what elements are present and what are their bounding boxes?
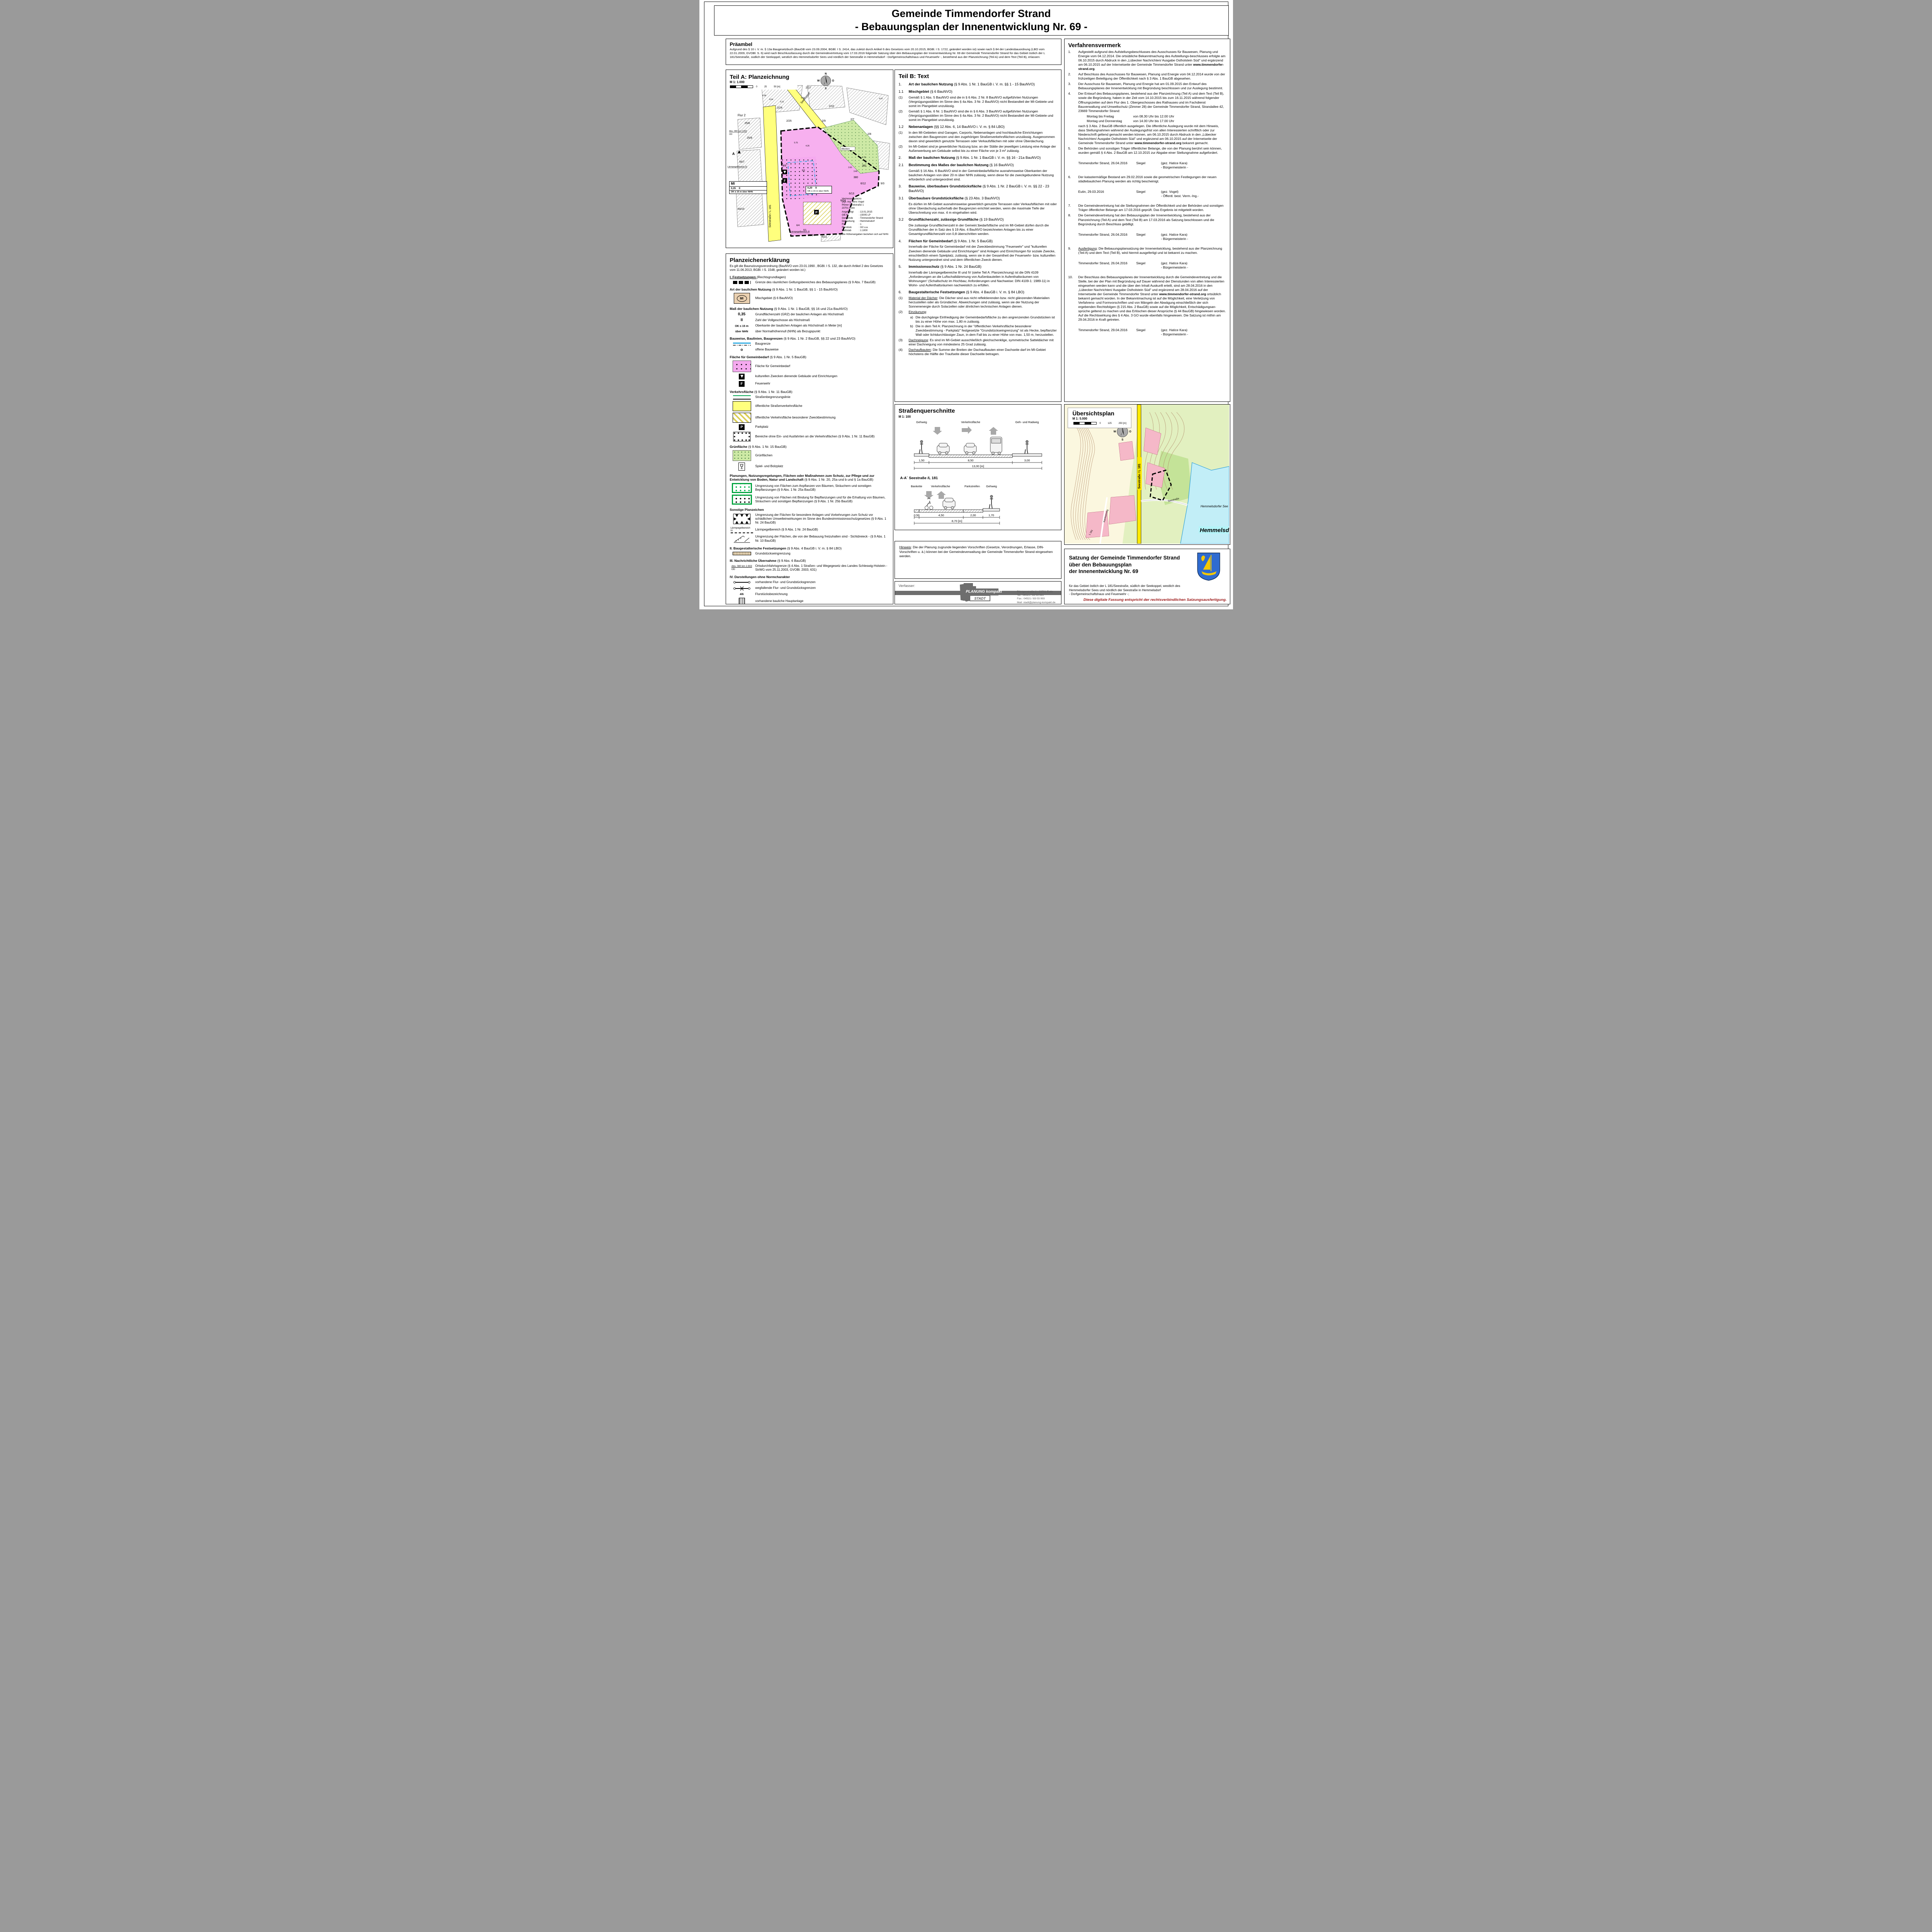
surveyor-line: Plöner Landstraße 1 [842, 204, 891, 207]
numbered-paragraph: (1)Gemäß § 1 Abs. 5 BauNVO sind die in §… [899, 95, 1057, 108]
hours-day: Montag bis Freitag [1087, 114, 1133, 119]
survey-meta-val: : 15005 LP [859, 214, 891, 217]
svg-text:4,50: 4,50 [938, 514, 944, 517]
legend-item-label: vorhandene Flur- und Grundstücksgrenzen [755, 580, 889, 584]
numbered-paragraph: 7.Die Gemeindevertretung hat die Stellun… [1068, 204, 1226, 212]
signature-name: (gez. Hatice Kara) [1161, 261, 1226, 265]
svg-text:54/10: 54/10 [738, 208, 745, 211]
symbol-bind-icon [731, 495, 753, 505]
verfahrensvermerk-box: Verfahrensvermerk 1.Aufgestellt aufgrund… [1064, 39, 1230, 402]
legend-item-label: wegfallende Flur- und Grundstücksgrenzen [755, 586, 889, 590]
scalebar-labels: 02550 [m] [756, 86, 781, 88]
symbol-txt-sm-icon: 4/6 [731, 592, 753, 596]
title-box: Gemeinde Timmendorfer Strand - Bebauungs… [714, 5, 1229, 36]
signature-row: Timmendorfer Strand, 26.04.2016Siegel(ge… [1078, 261, 1226, 270]
svg-text:9/3: 9/3 [881, 182, 884, 185]
legend-group-heading: Planungen, Nutzungsregelungen, Flächen o… [730, 474, 889, 481]
legend-item-label: Ortsdurchfahrtsgrenze (§ 4 Abs. 1 Straße… [755, 564, 889, 572]
signature-seal: Siegel [1136, 261, 1161, 265]
svg-text:A: A [732, 152, 735, 156]
symbol-txt-sm-icon: OK ≤ 15 m [731, 324, 753, 328]
symbol-txt-icon: 0,35 [731, 312, 753, 316]
verfasser-box: Verfasser: PLANUNG kompakt STADT Röntgen… [895, 581, 1061, 604]
legend-item: Umgrenzung von Flächen zum Anpflanzen vo… [731, 483, 889, 493]
municipal-coat-of-arms [1197, 552, 1221, 581]
legend-item-label: Umgrenzung der Flächen für besondere Anl… [755, 513, 889, 525]
survey-meta-key: Gemeinde [842, 217, 859, 220]
signature-row: Eutin, 29.03.2016Siegel(gez. Vogel)- Öff… [1078, 190, 1226, 198]
section-heading: 3.1Überbaubare Grundstücksfläche (§ 23 A… [899, 196, 1057, 201]
svg-text:2/27: 2/27 [806, 87, 811, 89]
symbol-kultur-icon [731, 374, 753, 379]
signature-seal: Siegel [1136, 233, 1161, 237]
paragraph: Innerhalb der Fläche für Gemeinbedarf mi… [909, 245, 1057, 262]
legend-item: 4/6Flurstücksbezeichnung [731, 592, 889, 596]
praeambel-box: Präambel Aufgrund des § 10 i. V. m. § 13… [726, 39, 1061, 65]
section-heading: 2.1Bestimmung des Maßes der baulichen Nu… [899, 163, 1057, 168]
legend-item-label: Lärmpegelbereich (§ 9 Abs. 1 Nr. 24 BauG… [755, 528, 889, 532]
legend-item-label: Umgrenzung von Flächen zum Anpflanzen vo… [755, 484, 889, 492]
scalebar-segments [730, 85, 753, 88]
svg-text:Flur 2: Flur 2 [738, 114, 746, 117]
satzung-box: Satzung der Gemeinde Timmendorfer Strand… [1064, 549, 1230, 604]
numbered-paragraph: (1)Material der Dächer: Die Dächer sind … [899, 296, 1057, 309]
signature-place: Timmendorfer Strand, 26.04.2016 [1078, 233, 1136, 237]
symbol-immission-icon [731, 514, 753, 524]
legend-item-label: Parkplatz [755, 425, 889, 429]
legend-item-label: Umgrenzung von Flächen mit Bindung für B… [755, 496, 889, 504]
legend-group-heading: IV. Darstellungen ohne Normcharakter [730, 575, 889, 579]
symbol-eingr-icon [731, 552, 753, 555]
parkplatz-icon: P [814, 210, 819, 214]
svg-text:1,50: 1,50 [918, 459, 924, 462]
survey-meta-key: Gemarkung [842, 220, 859, 223]
legend-item-label: Grünflächen [755, 454, 889, 457]
symbol-laerm-icon: Lärmpegelbereich IV [731, 527, 753, 533]
legend-item-label: öffentliche Verkehrsfläche besonderer Zw… [755, 416, 889, 420]
svg-text:4.26: 4.26 [806, 145, 810, 147]
address-line: Röntgenstraße 1 - 23701 Eutin [1017, 590, 1055, 594]
verfahrensvermerk-body: 1.Aufgestellt aufgrund des Aufstellungsb… [1068, 50, 1226, 337]
svg-text:W: W [1113, 430, 1116, 433]
logo-text-2: STADT [975, 597, 986, 600]
svg-text:Verkehrsfläche: Verkehrsfläche [931, 485, 950, 488]
legend-group-heading: Fläche für Gemeinbedarf (§ 9 Abs. 1 Nr. … [730, 355, 889, 359]
legend-item: PParkplatz [731, 424, 889, 430]
legend-intro: Es gilt die Baunutzungsverordnung (BauNV… [730, 264, 889, 272]
legend-item: ooffene Bauweise [731, 348, 889, 352]
survey-meta-val: : 1:1000 [859, 229, 891, 232]
praeambel-body: Aufgrund des § 10 i. V. m. § 13a Baugese… [730, 48, 1057, 59]
svg-text:4.97: 4.97 [879, 98, 883, 100]
satzung-body-line1: für das Gebiet östlich der L 181/Seestra… [1069, 584, 1225, 588]
hours-time: von 14.00 Uhr bis 17.00 Uhr [1133, 119, 1226, 123]
legend-body: I. Festsetzungen (Rechtsgrundlagen)Grenz… [726, 275, 893, 604]
legend-group-heading: Bauweise, Baulinien, Baugrenzen (§ 9 Abs… [730, 337, 889, 340]
symbol-boundary-icon [731, 281, 753, 284]
numbered-paragraph: 8.Die Gemeindevertretung hat den Bebauun… [1068, 213, 1226, 226]
svg-text:6/4: 6/4 [796, 224, 800, 227]
svg-text:Hemmelsdorf: Hemmelsdorf [1200, 527, 1229, 534]
svg-text:2/24: 2/24 [777, 107, 782, 109]
legend-item-label: Umgrenzung der Flächen, die von der Beba… [755, 535, 889, 543]
teil-b-body: 1.Art der baulichen Nutzung (§ 9 Abs. 1 … [899, 82, 1057, 356]
svg-text:S: S [1121, 439, 1123, 441]
legend-heading: Planzeichenerklärung [730, 257, 889, 264]
svg-text:6/12: 6/12 [861, 182, 866, 185]
legend-item: Abs. 080 km 2,933ODOrtsdurchfahrtsgrenze… [731, 564, 889, 572]
cross-sections-box: Straßenquerschnitte M 1: 100 GehwegVerke… [895, 404, 1061, 530]
section-heading: 3.2Grundflächenzahl, zulässige Grundfläc… [899, 218, 1057, 222]
numbered-paragraph: 1.Aufgestellt aufgrund des Aufstellungsb… [1068, 50, 1226, 71]
phone-line: Tel.: 04521 / 83 03 991 [1017, 594, 1055, 597]
numbered-paragraph: (2)Einzäunung: [899, 310, 1057, 314]
section-heading: 2.Maß der baulichen Nutzung (§ 9 Abs. 1 … [899, 156, 1057, 160]
svg-text:P: P [815, 211, 818, 214]
svg-text:N: N [825, 73, 827, 75]
survey-meta-key: Flurstück [842, 226, 859, 229]
survey-meta-key: Maßstab [842, 229, 859, 232]
svg-text:8,70 [m]: 8,70 [m] [951, 519, 962, 523]
symbol-ohnein-icon [731, 432, 753, 442]
hours-time: von 08.30 Uhr bis 12.00 Uhr [1133, 114, 1226, 119]
signature-role: - Bürgermeisterin - [1161, 165, 1226, 170]
survey-meta-key: Angefertigt [842, 211, 859, 214]
verfasser-address: Röntgenstraße 1 - 23701 Eutin Tel.: 0452… [1017, 590, 1055, 604]
section-heading: 1.1Mischgebiet (§ 6 BauNVO) [899, 90, 1057, 94]
mail-line: Mail: stadt@planung-kompakt.de [1017, 601, 1055, 604]
svg-text:O: O [1129, 430, 1131, 433]
kultur-icon [782, 170, 787, 174]
legend-item: über NHNüber Normalhöhennull (NHN) als B… [731, 330, 889, 333]
signature-role: - Bürgermeisterin - [1161, 332, 1226, 337]
info2-grz: 0,20 [808, 187, 813, 189]
numbered-paragraph: (3)Dachneigung: Es sind im MI-Gebiet aus… [899, 338, 1057, 347]
survey-meta-val: : 13.01.2015 [859, 211, 891, 214]
legend-item: Bereiche ohne Ein- und Ausfahrten an die… [731, 432, 889, 442]
svg-text:2/25: 2/25 [786, 120, 792, 122]
symbol-gemeinbedarf-icon [731, 361, 753, 372]
legend-item: Grenze des räumlichen Geltungsbereiches … [731, 281, 889, 284]
svg-text:6/11: 6/11 [822, 236, 827, 238]
legend-item: FFeuerwehr [731, 381, 889, 387]
svg-text:13,00 [m]: 13,00 [m] [972, 464, 984, 468]
svg-text:2.76: 2.76 [862, 156, 866, 159]
svg-text:Verkehrsfläche: Verkehrsfläche [961, 420, 980, 424]
symbol-blackbox-icon: F [731, 381, 753, 387]
signature-role: - Bürgermeisterin - [1161, 237, 1226, 241]
surveyor-line: 23701 Eutin [842, 207, 891, 210]
signature-name: (gez. Hatice Kara) [1161, 233, 1226, 237]
svg-text:O: O [832, 80, 834, 82]
hinweis-box: Hinweis: Die der Planung zugrunde liegen… [895, 541, 1061, 579]
svg-text:Bankette: Bankette [911, 485, 922, 488]
symbol-blackbox-icon: P [731, 424, 753, 430]
hours-day: Montag und Donnerstag [1087, 119, 1133, 123]
paragraph: Es dürfen im MI-Gebiet ausnahmsweise gew… [909, 202, 1057, 215]
legend-item: MIMischgebiet (§ 6 BauNVO) [731, 293, 889, 304]
satzung-title-line1: Satzung der Gemeinde Timmendorfer Strand [1069, 554, 1194, 561]
survey-meta-key: Flur [842, 223, 859, 226]
numbered-paragraph: (1)In den MI-Gebieten sind Garagen, Carp… [899, 131, 1057, 143]
legend-item-label: Spiel- und Bolzplatz [755, 464, 889, 468]
satzung-digital-note: Diese digitale Fassung entspricht der re… [1065, 598, 1227, 602]
svg-text:2/7: 2/7 [850, 118, 854, 121]
legend-item: Umgrenzung von Flächen mit Bindung für B… [731, 495, 889, 505]
lettered-subparagraph: a)Die durchgänge Einfriedigung der Gemei… [910, 315, 1057, 324]
svg-text:OD: OD [729, 133, 732, 136]
svg-text:Lärmpegelbereich III: Lärmpegelbereich III [790, 231, 810, 233]
legend-group-heading: III. Nachrichtliche Übernahme (§ 9 Abs. … [730, 559, 889, 563]
survey-meta-val: : Hemmelsdorf [859, 220, 891, 223]
svg-text:6/13: 6/13 [849, 192, 854, 195]
symbol-flur-icon [731, 580, 753, 584]
svg-text:380: 380 [854, 176, 858, 179]
cross-sections-heading: Straßenquerschnitte [899, 408, 1057, 414]
legend-item-label: vorhandene bauliche Hauptanlage [755, 599, 889, 603]
teil-a-scale: M 1: 1.000 [730, 80, 789, 84]
svg-text:6.21: 6.21 [780, 101, 784, 103]
legend-item-label: Zahl der Vollgeschosse als Höchstmaß [755, 318, 889, 322]
mi-info-floors: II [739, 187, 740, 190]
cross-sections-body: GehwegVerkehrsflächeGeh- und Radweg1,508… [895, 418, 1061, 530]
svg-text:3.40: 3.40 [854, 170, 857, 173]
teil-a-box: FPNSWOFlur 22/272/242/102/252/92/72/825/… [726, 70, 893, 248]
legend-item: Umgrenzung der Flächen für besondere Anl… [731, 513, 889, 525]
numbered-paragraph: (4)Dachaufbauten: Die Summe der Breiten … [899, 348, 1057, 356]
fax-line: Fax.: 04521 / 83 03 993 [1017, 597, 1055, 600]
surveyor-line: Vermessungsbüro [842, 197, 891, 201]
symbol-strasse-icon [731, 401, 753, 411]
teil-a-header: Teil A: Planzeichnung M 1: 1.000 02550 [… [726, 70, 797, 90]
scalebar-labels: 0125250 [m] [1100, 422, 1126, 425]
symbol-mi-icon: MI [731, 293, 753, 304]
numbered-paragraph: (2)Im MI-Gebiet sind je gewerblicher Nut… [899, 145, 1057, 153]
survey-meta-key: GB-Nr. [842, 214, 859, 217]
legend-item: vorhandene Flur- und Grundstücksgrenzen [731, 580, 889, 584]
overview-scalebar: 0125250 [m] [1073, 422, 1126, 425]
signature-row: Timmendorfer Strand, 29.04.2016Siegel(ge… [1078, 328, 1226, 337]
mi-info-grz: 0,35 [731, 187, 736, 190]
plan-info-box-2: 0,20II OK ≤ 15 m über NHN [806, 186, 832, 194]
numbered-paragraph: 10.Der Beschluss des Bebauungsplanes der… [1068, 275, 1226, 322]
numbered-paragraph: 5.Die Behörden und sonstigen Träger öffe… [1068, 146, 1226, 155]
legend-item-label: über Normalhöhennull (NHN) als Bezugspun… [755, 330, 889, 333]
symbol-od-icon: Abs. 080 km 2,933OD [731, 565, 753, 571]
info2-floors: II [815, 187, 817, 189]
svg-text:W: W [817, 80, 820, 82]
svg-text:8.54: 8.54 [769, 99, 773, 101]
paragraph-continued: nach § 3 Abs. 2 BauGB öffentlich ausgele… [1078, 124, 1226, 145]
satzung-body-line3: - Dorfgemeinschaftshaus und Feuerwehr -; [1069, 592, 1225, 597]
overview-scale: M 1: 5.000 [1073, 417, 1122, 420]
hinweis-text: Hinweis: Die der Planung zugrunde liegen… [900, 545, 1056, 559]
legend-item-label: Feuerwehr [755, 382, 889, 386]
document-title-line2: - Bebauungsplan der Innenentwicklung Nr.… [855, 20, 1088, 34]
legend-group-heading: Verkehrsfläche (§ 9 Abs. 1 Nr. 11 BauGB) [730, 390, 889, 394]
survey-note: Die Höhenangaben beziehen sich auf NHN [842, 233, 891, 236]
svg-text:25/8: 25/8 [745, 122, 750, 125]
legend-group-heading: Art der baulichen Nutzung (§ 9 Abs. 1 Nr… [730, 287, 889, 291]
legend-item-label: Bereiche ohne Ein- und Ausfahrten an die… [755, 435, 889, 439]
svg-text:Seestraße / L 181: Seestraße / L 181 [768, 205, 772, 228]
paragraph: Innerhalb der Lärmpegelbereiche III und … [909, 270, 1057, 287]
signature-role: - Bürgermeisterin - [1161, 265, 1226, 270]
signature-place: Timmendorfer Strand, 29.04.2016 [1078, 328, 1136, 332]
legend-item-label: Grundstückseingrenzung [755, 552, 889, 556]
survey-meta-val: : 3/2 u.a. [859, 226, 891, 229]
svg-text:Gehweg: Gehweg [916, 420, 927, 424]
legend-item-label: Baugrenze [755, 342, 889, 346]
scalebar-segments [1073, 422, 1097, 425]
symbol-anpf-icon [731, 483, 753, 493]
svg-text:Geh- und Radweg: Geh- und Radweg [1015, 420, 1039, 424]
info2-ok: OK ≤ 15 m über NHN [806, 190, 832, 193]
legend-item: Fläche für Gemeinbedarf [731, 361, 889, 372]
svg-text:2/10: 2/10 [829, 105, 834, 108]
svg-text:6.98: 6.98 [762, 95, 766, 97]
hinweis-body: : Die der Planung zugrunde liegenden Vor… [900, 545, 1053, 558]
symbol-spielplatz-icon [731, 463, 753, 471]
legend-item: IIZahl der Vollgeschosse als Höchstmaß [731, 318, 889, 322]
legend-item-label: Flurstücksbezeichnung [755, 592, 889, 596]
svg-text:381: 381 [862, 165, 867, 167]
svg-text:2/8: 2/8 [867, 133, 871, 136]
signature-seal: Siegel [1136, 190, 1161, 194]
cross-section-diagram: GehwegVerkehrsflächeGeh- und Radweg1,508… [895, 418, 1061, 473]
legend-item: Spiel- und Bolzplatz [731, 463, 889, 471]
signature-place: Timmendorfer Strand, 26.04.2016 [1078, 261, 1136, 265]
section-heading: 4.Flächen für Gemeinbedarf (§ 9 Abs. 1 N… [899, 239, 1057, 244]
surveyor-block: VermessungsbüroDipl.-Ing. Jens VogelPlön… [842, 197, 891, 236]
svg-text:Parkstreifen: Parkstreifen [964, 485, 980, 488]
survey-meta-val: : Timmendorfer Strand [859, 217, 891, 220]
cross-section-diagram: BanketteVerkehrsflächeParkstreifenGehweg… [895, 483, 1061, 528]
svg-text:Gehweg: Gehweg [986, 485, 997, 488]
opening-hours: Montag bis Freitagvon 08.30 Uhr bis 12.0… [1087, 114, 1226, 123]
symbol-haupt-icon [731, 598, 753, 604]
legend-item: Straßenbegrenzungslinie [731, 395, 889, 400]
numbered-paragraph: 4.Der Entwurf des Bebauungsplanes, beste… [1068, 92, 1226, 113]
section-heading: 5.Immissionsschutz (§ 9 Abs. 1 Nr. 24 Ba… [899, 265, 1057, 269]
signature-row: Timmendorfer Strand, 26.04.2016Siegel(ge… [1078, 233, 1226, 241]
section-heading: 3.Bauweise, überbaubare Grundstücksfläch… [899, 184, 1057, 194]
numbered-paragraph: 2.Auf Beschluss des Ausschusses für Bauw… [1068, 72, 1226, 81]
overview-header: Übersichtsplan M 1: 5.000 0125250 [m] [1068, 408, 1131, 428]
legend-item: kulturellen Zwecken dienende Gebäude und… [731, 374, 889, 379]
verfahrensvermerk-heading: Verfahrensvermerk [1068, 42, 1226, 49]
symbol-txt-icon: II [731, 318, 753, 322]
svg-text:Lärmpegelbereich IV: Lärmpegelbereich IV [728, 166, 747, 168]
section-heading: 1.Art der baulichen Nutzung (§ 9 Abs. 1 … [899, 82, 1057, 87]
legend-item: Lärmpegelbereich IVLärmpegelbereich (§ 9… [731, 527, 889, 533]
cross-section-caption: A-A` Seestraße /L 181 [900, 476, 1057, 480]
mi-info-box: MI 0,35II OK ≤ 15 m über NHN [729, 181, 767, 194]
signature-seal: Siegel [1136, 161, 1161, 165]
legend-item-label: kulturellen Zwecken dienende Gebäude und… [755, 374, 889, 378]
svg-text:56/7: 56/7 [739, 161, 745, 163]
svg-text:2.60: 2.60 [848, 167, 852, 169]
svg-text:25/9: 25/9 [747, 137, 752, 139]
section-heading: 6.Baugestalterische Festsetzungen (§ 9 A… [899, 290, 1057, 295]
teil-b-heading: Teil B: Text [899, 73, 1057, 80]
svg-text:6.93: 6.93 [801, 97, 805, 99]
legend-item-label: Grenze des räumlichen Geltungsbereiches … [755, 281, 889, 284]
svg-text:3/2: 3/2 [802, 170, 805, 172]
section-heading: 1.2Nebenanlagen (§§ 12 Abs. 6, 14 BauNVO… [899, 125, 1057, 129]
teil-a-scalebar: 02550 [m] [730, 85, 793, 88]
feuerwehr-icon: F [782, 178, 787, 183]
svg-text:Hemmelsdorfer See: Hemmelsdorfer See [1201, 505, 1228, 508]
svg-text:2,00: 2,00 [970, 514, 976, 517]
lettered-subparagraph: b)Die in dem Teil A: Planzeichnung in de… [910, 324, 1057, 337]
numbered-paragraph: (2)Gemäß § 1 Abs. 6 Nr. 1 BauNVO sind di… [899, 109, 1057, 122]
svg-text:öffentlich: öffentlich [841, 148, 850, 150]
legend-item-label: öffentliche Straßenverkehrsfläche [755, 404, 889, 408]
teil-b-box: Teil B: Text 1.Art der baulichen Nutzung… [895, 70, 1061, 402]
legend-item: Baugrenze [731, 342, 889, 346]
legend-group-heading: II. Baugestalterische Festsetzungen (§ 9… [730, 546, 889, 550]
numbered-paragraph: 3.Der Ausschuss für Bauwesen, Planung un… [1068, 82, 1226, 90]
legend-item-label: Mischgebiet (§ 6 BauNVO) [755, 296, 889, 300]
legend-item-label: Oberkante der baulichen Anlagen als Höch… [755, 324, 889, 328]
mi-info-mi: MI [730, 182, 767, 187]
praeambel-heading: Präambel [730, 41, 1057, 47]
signature-role: - Öffentl. best. Verm.-Ing.- [1161, 194, 1226, 198]
legend-group-heading: Maß der baulichen Nutzung (§ 9 Abs. 1 Nr… [730, 307, 889, 311]
symbol-baugrenze-icon [731, 342, 753, 346]
svg-text:Seestraße / L 181: Seestraße / L 181 [1138, 463, 1141, 489]
signature-seal: Siegel [1136, 328, 1161, 332]
satzung-title-line2: über den Bebauungsplan [1069, 561, 1194, 568]
legend-item: Grünflächen [731, 450, 889, 461]
legend-item: Umgrenzung der Flächen, die von der Beba… [731, 535, 889, 543]
cross-sections-scale: M 1: 100 [899, 415, 1057, 418]
legend-item: öffentliche Straßenverkehrsfläche [731, 401, 889, 411]
signature-name: (gez. Hatice Kara) [1161, 328, 1226, 332]
svg-text:5.75: 5.75 [794, 142, 798, 144]
svg-text:4/6: 4/6 [782, 165, 786, 167]
svg-text:1,70: 1,70 [988, 514, 994, 517]
legend-item-label: Fläche für Gemeinbedarf [755, 364, 889, 368]
symbol-zweck-icon [731, 413, 753, 423]
hinweis-label: Hinweis [900, 545, 911, 549]
svg-text:3,00: 3,00 [1024, 459, 1030, 462]
legend-item: vorhandene bauliche Hauptanlage [731, 598, 889, 604]
legend-item: OK ≤ 15 mOberkante der baulichen Anlagen… [731, 324, 889, 328]
plan-document-page: Gemeinde Timmendorfer Strand - Bebauungs… [699, 0, 1233, 609]
legend-item: 0,35Grundflächenzahl (GRZ) der baulichen… [731, 312, 889, 316]
overview-heading: Übersichtsplan [1073, 410, 1123, 417]
document-title-line1: Gemeinde Timmendorfer Strand [891, 7, 1051, 20]
svg-text:33/24: 33/24 [808, 234, 815, 237]
paragraph: Gemäß § 16 Abs. 6 BauNVO sind in der Gem… [909, 169, 1057, 182]
signature-name: (gez. Hatice Kara) [1161, 161, 1226, 165]
svg-text:2/9: 2/9 [822, 120, 826, 122]
legend-item: wegfallende Flur- und Grundstücksgrenzen [731, 586, 889, 591]
legend-box: Planzeichenerklärung Es gilt die Baunutz… [726, 253, 893, 604]
svg-text:F: F [784, 179, 786, 183]
svg-text:Abs. 080 km 2.933: Abs. 080 km 2.933 [729, 130, 747, 133]
verfasser-label: Verfasser: [899, 584, 915, 588]
legend-group-heading: I. Festsetzungen (Rechtsgrundlagen) [730, 275, 889, 279]
numbered-paragraph: 6.Der katastermäßige Bestand am 29.02.20… [1068, 175, 1226, 184]
legend-item: öffentliche Verkehrsfläche besonderer Zw… [731, 413, 889, 423]
surveyor-line: Dipl.-Ing. Jens Vogel [842, 201, 891, 204]
symbol-sicht-icon [731, 535, 753, 543]
signature-name: (gez. Vogel) [1161, 190, 1226, 194]
symbol-gruen-icon [731, 450, 753, 461]
